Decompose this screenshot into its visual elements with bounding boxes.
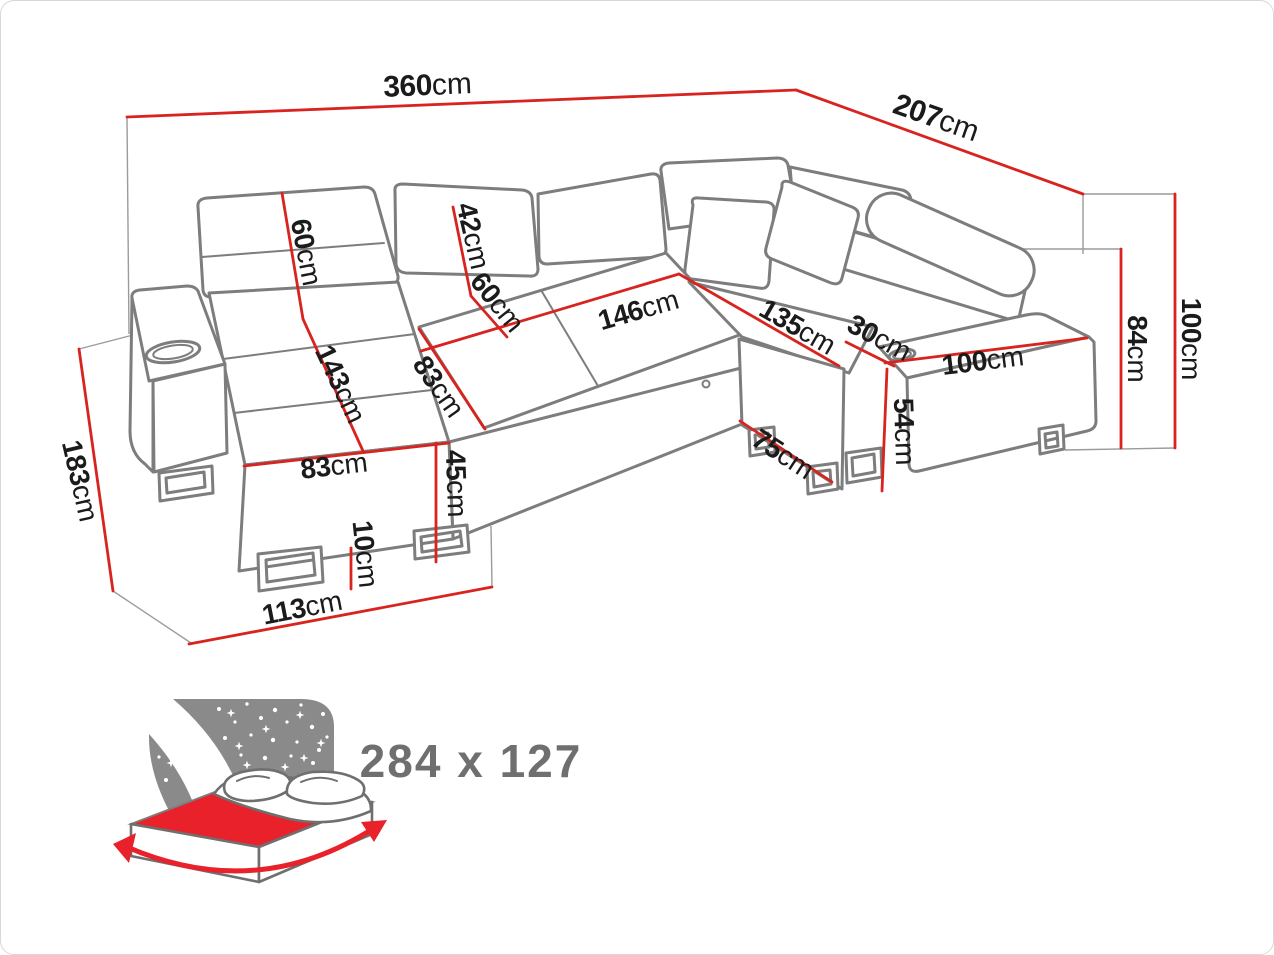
guide-chaise-top <box>79 335 133 349</box>
dim-label-base-height-right: 54cm <box>888 397 921 466</box>
dim-label-seat-height: 45cm <box>440 449 473 518</box>
throw-pillow-left <box>685 198 774 288</box>
sleeping-function-icon: 284 x 127 <box>113 699 582 882</box>
dim-label-width-total: 360cm <box>383 67 473 104</box>
middle-backrest-right <box>538 174 666 264</box>
dim-label-depth-total: 207cm <box>889 88 983 149</box>
sleeping-size-label: 284 x 127 <box>360 735 583 787</box>
sofa-leg <box>258 547 323 591</box>
sofa-leg <box>846 448 882 483</box>
bed-pillow-right <box>287 772 364 804</box>
guide-floor-right <box>491 526 492 587</box>
left-armrest-front <box>153 364 227 472</box>
sofa-dimension-diagram: 360cm 207cm 100cm 84cm 183cm 60cm 42cm 6… <box>1 1 1274 955</box>
guide-chaise-bottom <box>113 591 191 643</box>
dim-label-height-backrest: 84cm <box>1122 315 1153 382</box>
sofa-leg <box>159 466 213 501</box>
guide-left-vertical <box>127 117 129 334</box>
dim-label-height-total: 100cm <box>1176 298 1207 381</box>
dim-line-base-height-right <box>882 369 887 491</box>
diagram-frame: 360cm 207cm 100cm 84cm 183cm 60cm 42cm 6… <box>0 0 1274 955</box>
